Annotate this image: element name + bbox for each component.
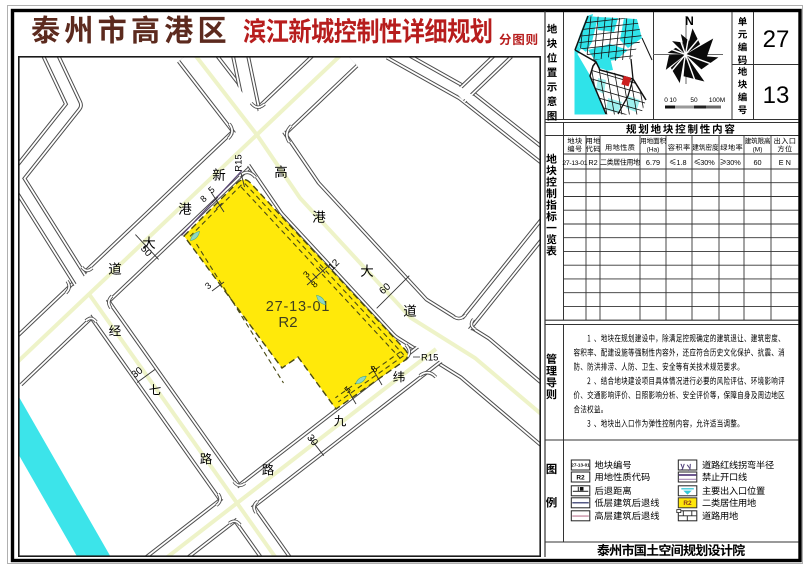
svg-text:27: 27 [763, 26, 790, 53]
svg-text:30%: 30% [700, 158, 715, 167]
svg-text:R15: R15 [421, 353, 438, 364]
svg-text:R2: R2 [576, 474, 585, 481]
svg-text:0: 0 [664, 97, 668, 104]
svg-text:27-13-01: 27-13-01 [571, 463, 590, 468]
svg-text:6.79: 6.79 [646, 158, 660, 167]
svg-text:(M): (M) [753, 147, 763, 154]
svg-text:60: 60 [753, 158, 761, 167]
svg-text:1.8: 1.8 [676, 158, 686, 167]
svg-text:(Ha): (Ha) [647, 147, 660, 154]
svg-text:R15: R15 [234, 154, 245, 171]
svg-text:R2: R2 [683, 500, 692, 507]
svg-text:N: N [685, 14, 694, 28]
svg-text:E N: E N [779, 158, 791, 167]
svg-text:50: 50 [690, 97, 698, 104]
svg-text:R2: R2 [278, 314, 297, 331]
svg-text:10: 10 [669, 97, 677, 104]
svg-text:27-13-01: 27-13-01 [562, 160, 587, 167]
svg-text:R2: R2 [588, 158, 597, 167]
svg-text:13: 13 [763, 82, 790, 109]
svg-text:100M: 100M [709, 97, 725, 104]
svg-text:30%: 30% [726, 158, 741, 167]
